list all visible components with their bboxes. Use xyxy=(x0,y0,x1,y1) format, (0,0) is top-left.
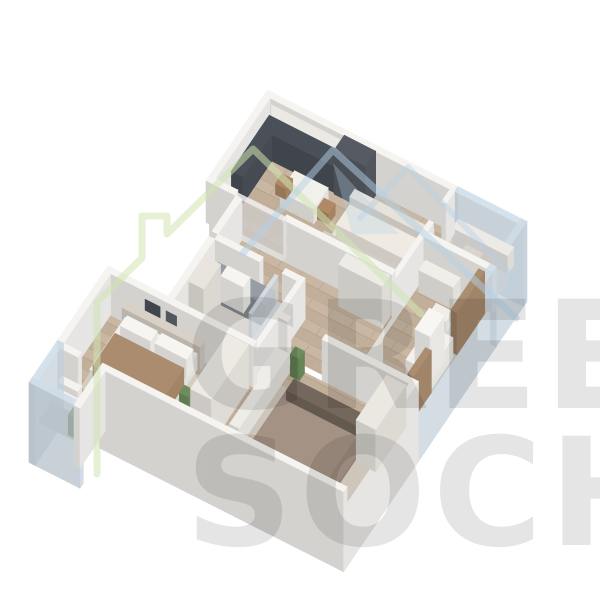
wall-balcony-end xyxy=(74,405,80,468)
watermark-text-line2: SOCHI xyxy=(185,407,600,581)
sheer-curtain xyxy=(284,217,287,261)
isometric-floorplan: GREEN SOCHI xyxy=(0,0,600,600)
floorplan-render: GREEN SOCHI xyxy=(0,0,600,600)
